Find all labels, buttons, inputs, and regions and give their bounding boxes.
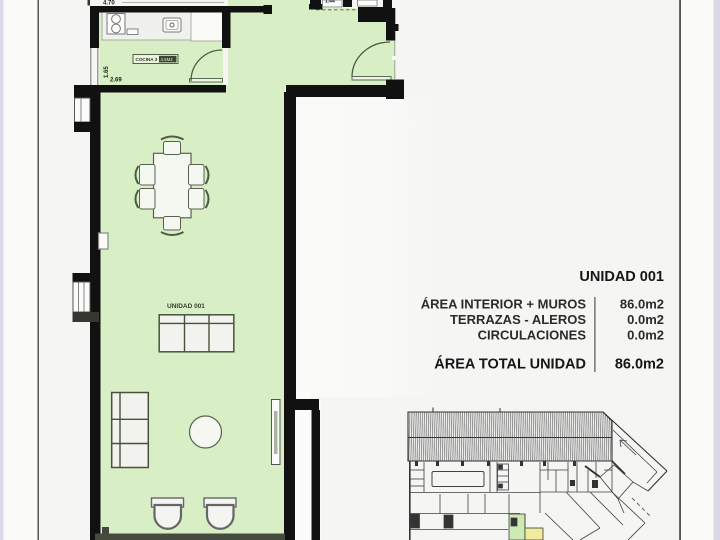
svg-text:ÁREA TOTAL UNIDAD: ÁREA TOTAL UNIDAD	[434, 356, 586, 373]
svg-text:TERRAZAS - ALEROS: TERRAZAS - ALEROS	[450, 312, 586, 327]
svg-text:CIRCULACIONES: CIRCULACIONES	[478, 328, 587, 343]
svg-text:0.0m2: 0.0m2	[627, 312, 664, 327]
svg-text:1.44: 1.44	[325, 0, 335, 5]
svg-text:UNIDAD 001: UNIDAD 001	[167, 303, 205, 310]
svg-text:1.65: 1.65	[104, 66, 110, 78]
svg-text:COCINA 3: COCINA 3	[136, 57, 158, 62]
svg-text:ÁREA INTERIOR + MUROS: ÁREA INTERIOR + MUROS	[421, 297, 587, 312]
svg-text:86.0m2: 86.0m2	[615, 357, 664, 373]
svg-text:0.0m2: 0.0m2	[627, 328, 664, 343]
svg-text:UNIDAD 001: UNIDAD 001	[579, 269, 664, 285]
svg-text:86.0m2: 86.0m2	[620, 297, 664, 312]
svg-text:2.69: 2.69	[110, 78, 122, 84]
svg-text:4.70: 4.70	[103, 1, 115, 7]
svg-text:4.6M2: 4.6M2	[161, 57, 174, 62]
